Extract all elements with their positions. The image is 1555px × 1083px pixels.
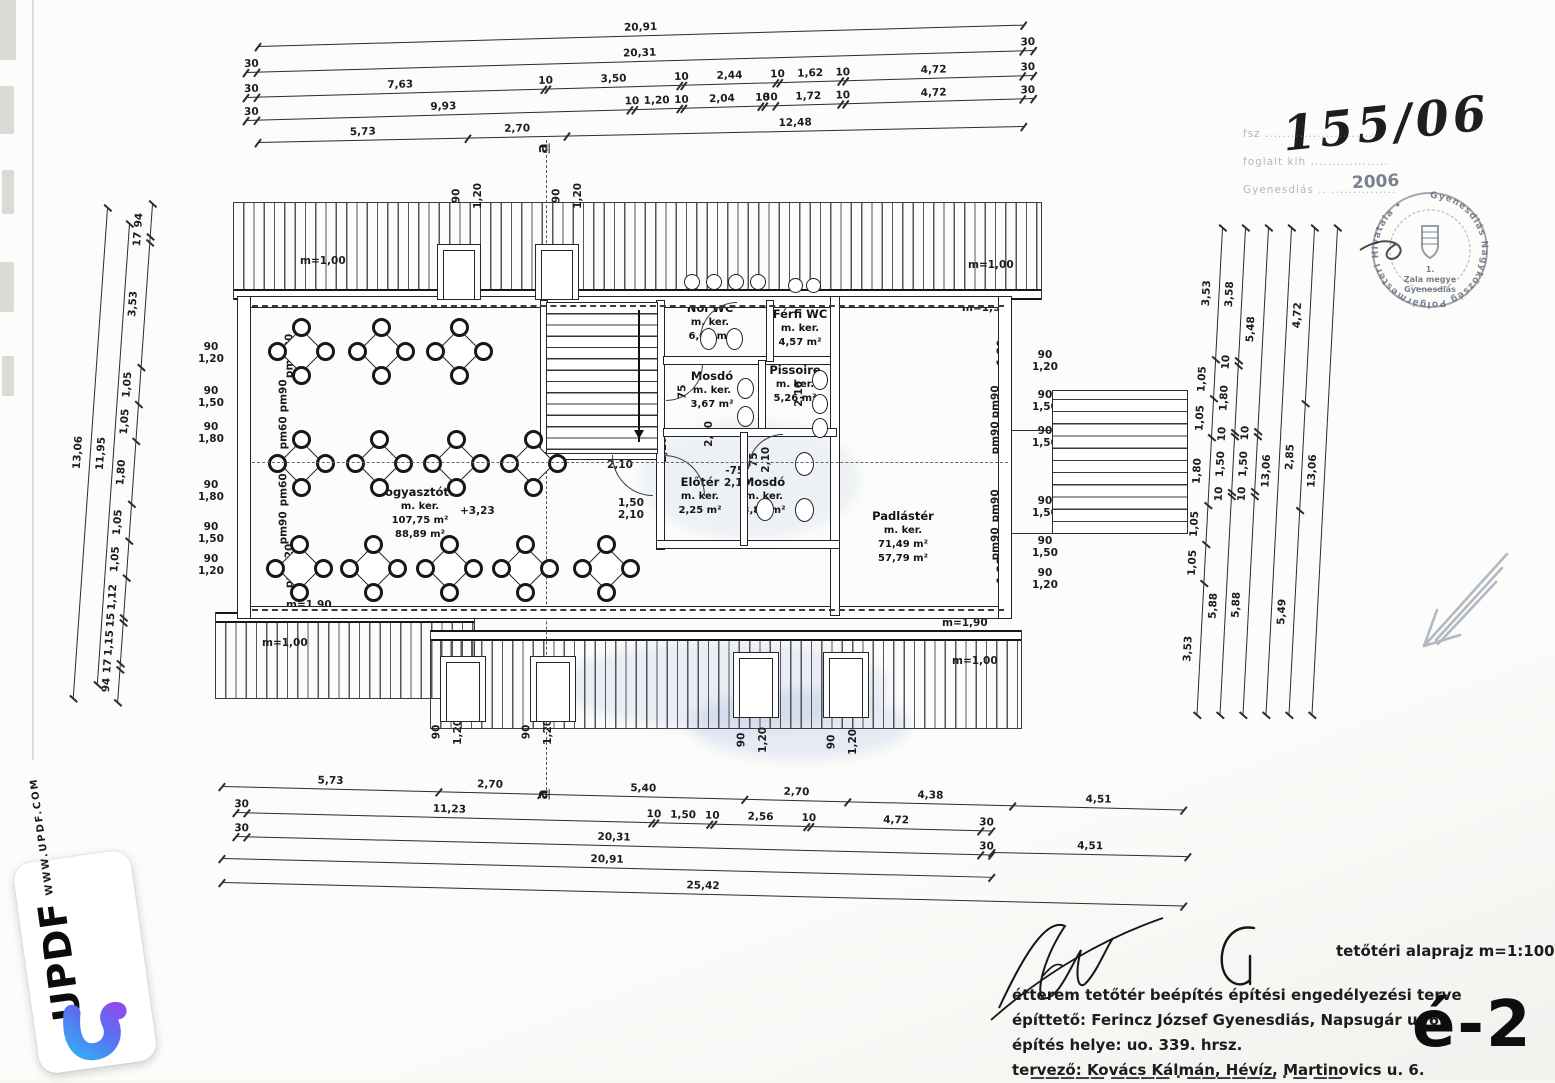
dim-value: 10 xyxy=(1220,355,1233,370)
dim-segment: 1,50 xyxy=(1232,437,1235,493)
chair xyxy=(370,478,389,497)
chair xyxy=(316,342,335,361)
dim-chain: 3011,23101,50102,56104,7230 xyxy=(236,812,992,831)
dim-value: 10 xyxy=(801,812,816,824)
project-line: étterem tetőtér beépítés építési engedél… xyxy=(1012,983,1462,1008)
dim-segment: 2,70 xyxy=(745,800,847,802)
chair xyxy=(447,478,466,497)
dim-value: 20,91 xyxy=(624,21,658,34)
stair-direction-arrow xyxy=(638,310,640,442)
dim-chain: 94173,531,051,051,801,051,051,12151,1517… xyxy=(117,204,153,703)
chair xyxy=(364,535,383,554)
dim-segment: 4,72 xyxy=(811,827,981,831)
dim-segment: 12,48 xyxy=(567,127,1024,137)
dim-value: 10 xyxy=(1216,426,1229,441)
dim-segment: 4,72 xyxy=(845,99,1022,104)
dim-value: 1,05 xyxy=(118,409,132,436)
fixture-urinal xyxy=(812,418,828,438)
annotation: +3,23 xyxy=(460,506,495,518)
dim-value: 9,93 xyxy=(430,100,456,113)
dim-value: 3,50 xyxy=(600,72,626,85)
dim-segment: 20,31 xyxy=(247,837,981,855)
dim-value: 4,72 xyxy=(920,86,946,99)
dim-value: 5,40 xyxy=(630,782,656,795)
annotation: 901,80 xyxy=(198,422,224,446)
dim-value: 13,06 xyxy=(1305,454,1319,488)
chair xyxy=(548,454,567,473)
dim-segment: 1,80 xyxy=(1208,438,1212,505)
dim-segment: 5,40 xyxy=(541,795,745,800)
dim-segment: 1,15 xyxy=(121,623,124,663)
annotation: 1,20 xyxy=(573,183,585,209)
dim-segment: 20,91 xyxy=(258,26,1024,47)
dim-segment: 20,31 xyxy=(257,51,1022,72)
dim-segment: 4,51 xyxy=(1013,806,1184,810)
annotation: 90 xyxy=(451,189,463,204)
dim-value: 2,44 xyxy=(716,69,742,82)
annotation: 1,20 xyxy=(848,729,860,755)
municipal-stamp: Gyenesdiás Nagyközség Polgármesteri Hiva… xyxy=(1368,188,1492,312)
annotation: m=1,90 xyxy=(942,618,988,630)
dim-segment: 5,73 xyxy=(222,787,439,792)
dim-segment: 20,91 xyxy=(222,859,992,878)
wall-eloter-v xyxy=(740,432,748,546)
handwritten-file-number: 155/06 xyxy=(1280,85,1493,162)
dim-value: 1,80 xyxy=(114,459,128,486)
annotation: a xyxy=(535,789,552,799)
fixture-toilet xyxy=(737,406,754,427)
chair xyxy=(474,342,493,361)
chair xyxy=(440,583,459,602)
dim-value: 1,05 xyxy=(108,546,122,573)
dim-segment: 4,51 xyxy=(992,853,1188,857)
chair xyxy=(440,535,459,554)
dim-segment: 5,88 xyxy=(1243,497,1254,716)
fixture-basin xyxy=(788,278,803,293)
chair xyxy=(340,559,359,578)
dim-value: 30 xyxy=(979,816,994,828)
fixture-basin xyxy=(706,274,722,290)
stamp-center-3: Gyenesdiás xyxy=(1404,285,1456,294)
dim-value: 4,72 xyxy=(1291,302,1304,329)
dim-segment: 1,05 xyxy=(127,542,130,579)
dim-segment: 4,72 xyxy=(1306,228,1315,404)
scan-fold-line xyxy=(32,0,34,760)
dim-segment: 1,05 xyxy=(1214,360,1216,399)
dim-segment: 4,72 xyxy=(845,76,1022,81)
chair xyxy=(266,559,285,578)
dim-value: 12,48 xyxy=(778,116,811,129)
dim-segment: 25,42 xyxy=(222,883,1184,907)
project-line: építés helye: uo. 339. hrsz. xyxy=(1012,1033,1462,1058)
dim-value: 10 xyxy=(1236,486,1249,501)
drawing-title: tetőtéri alaprajz m=1:100 xyxy=(1336,942,1555,960)
dim-value: 30 xyxy=(1020,36,1035,48)
annotation: 901,50 xyxy=(1032,536,1058,560)
faint-form-line: fsz .......................... xyxy=(1243,128,1378,140)
chair xyxy=(471,454,490,473)
chair xyxy=(364,583,383,602)
fixture-basin xyxy=(756,498,774,521)
dim-value: 30 xyxy=(244,106,259,118)
dim-value: 2,56 xyxy=(747,811,773,824)
roof-hatch-bottom xyxy=(430,630,1022,729)
dim-value: 13,06 xyxy=(1259,454,1273,488)
dim-value: 1,05 xyxy=(1186,550,1199,577)
chair xyxy=(573,559,592,578)
dim-value: 1,05 xyxy=(120,372,134,399)
annotation: 90 xyxy=(521,725,533,740)
dim-segment: 1,72 xyxy=(776,104,841,106)
dim-value: 1,05 xyxy=(1195,365,1208,392)
dim-value: 2,04 xyxy=(709,92,735,105)
dim-value: 94 xyxy=(132,212,145,227)
dim-value: 3,53 xyxy=(126,291,140,318)
chair xyxy=(372,318,391,337)
dim-chain: 3020,3130 xyxy=(236,836,992,855)
dim-segment: 94 xyxy=(118,670,120,703)
dim-value: 30 xyxy=(1020,61,1035,73)
scan-artifact xyxy=(0,262,14,312)
dim-value: 1,05 xyxy=(1193,405,1206,432)
dim-value: 25,42 xyxy=(686,879,720,892)
dim-value: 30 xyxy=(244,83,259,95)
dim-value: 17 xyxy=(101,658,114,673)
chair xyxy=(292,478,311,497)
dim-segment: 13,06 xyxy=(1312,228,1338,715)
dim-value: 4,51 xyxy=(1085,793,1111,806)
dim-segment: 5,73 xyxy=(258,139,468,143)
fixture-toilet xyxy=(737,378,754,399)
chair xyxy=(416,559,435,578)
dim-segment: 1,05 xyxy=(1212,399,1214,438)
dim-value: 20,31 xyxy=(597,831,631,844)
chair xyxy=(292,366,311,385)
annotation: 901,20 xyxy=(198,342,224,366)
dim-value: 1,12 xyxy=(106,584,120,611)
updf-text-group: UPDF WWW.UPDF.COM xyxy=(25,869,89,1024)
dim-value: 2,85 xyxy=(1283,443,1296,470)
dim-segment: 1,05 xyxy=(129,505,132,542)
dim-chain: 4,51 xyxy=(992,852,1188,857)
dim-value: 3,53 xyxy=(1181,636,1194,663)
scan-artifact xyxy=(0,0,16,60)
dim-value: 20,91 xyxy=(590,853,624,866)
chair xyxy=(290,535,309,554)
dim-value: 7,63 xyxy=(387,78,413,91)
chair xyxy=(464,559,483,578)
dim-segment: 1,62 xyxy=(780,81,841,83)
dim-segment: 13,06 xyxy=(1266,228,1292,715)
dim-value: 30 xyxy=(763,91,778,103)
annotation: m=1,00 xyxy=(952,656,998,668)
wall-wc-h2 xyxy=(663,428,837,437)
dormer-window xyxy=(535,244,579,300)
chair xyxy=(290,583,309,602)
annotation: 1,502,10 xyxy=(618,498,644,522)
updf-watermark: UPDF WWW.UPDF.COM xyxy=(12,849,158,1075)
dim-chain: 20,91 xyxy=(258,25,1024,47)
faint-form-line: foglalt kih .................. xyxy=(1243,156,1389,168)
room-label: Padlástérm. ker.71,49 m²57,79 m² xyxy=(872,508,934,566)
dim-value: 13,06 xyxy=(71,436,85,470)
annotation: pm60 xyxy=(279,416,291,449)
dim-chain: 13,06 xyxy=(1265,228,1292,715)
fixture-basin xyxy=(806,278,821,293)
kneewall-line-top xyxy=(252,305,1004,307)
dim-segment: 1,20 xyxy=(634,109,679,110)
project-line: építtető: Ferincz József Gyenesdiás, Nap… xyxy=(1012,1008,1462,1033)
dim-segment: 5,49 xyxy=(1289,511,1300,716)
dim-chain: 5,732,7012,48 xyxy=(258,126,1024,143)
dim-value: 5,88 xyxy=(1207,592,1220,619)
chair xyxy=(268,342,287,361)
dim-value: 4,38 xyxy=(917,789,943,802)
chair xyxy=(500,454,519,473)
wall-padlaster xyxy=(830,296,840,616)
annotation: 1,20 xyxy=(758,727,770,753)
dim-segment: 2,70 xyxy=(439,792,541,794)
dim-value: 30 xyxy=(234,798,249,810)
dim-value: 3,53 xyxy=(1200,280,1213,307)
annotation: 90 xyxy=(551,189,563,204)
chair xyxy=(370,430,389,449)
deck-connector xyxy=(1010,430,1054,534)
dim-value: 4,51 xyxy=(1077,840,1103,853)
dormer-window xyxy=(823,652,869,718)
dim-value: 17 xyxy=(131,232,144,247)
dim-value: 3,58 xyxy=(1223,281,1236,308)
dim-value: 2,70 xyxy=(504,122,530,135)
dim-value: 10 xyxy=(1213,486,1226,501)
dim-segment: 3,53 xyxy=(1216,228,1223,360)
dim-segment: 2,44 xyxy=(684,83,776,86)
kneewall-line-bottom xyxy=(252,609,1004,611)
dim-value: 11,95 xyxy=(94,437,108,471)
dim-chain: 5,732,705,402,704,384,51 xyxy=(222,786,1184,811)
dim-value: 5,49 xyxy=(1275,599,1288,626)
annotation: m=1,00 xyxy=(300,256,346,268)
annotation: pm90 xyxy=(279,379,291,412)
wall-wc-v2 xyxy=(758,360,766,437)
dim-value: 10 xyxy=(1239,426,1252,441)
dim-value: 4,72 xyxy=(920,63,946,76)
dim-value: 1,20 xyxy=(644,94,670,107)
annotation: 901,80 xyxy=(198,480,224,504)
annotation: 90 xyxy=(736,733,748,748)
roof-hatch-top xyxy=(233,202,1042,300)
dim-value: 1,50 xyxy=(1214,451,1227,478)
dim-segment: 2,85 xyxy=(1300,404,1306,510)
dim-value: 94 xyxy=(100,678,113,693)
dormer-window xyxy=(530,656,576,722)
annotation: pm60 xyxy=(279,473,291,506)
stamp-center-1: 1. xyxy=(1426,265,1435,274)
chair xyxy=(516,583,535,602)
scan-artifact xyxy=(2,356,14,396)
dim-chain: 3020,3130 xyxy=(246,50,1034,73)
dim-segment: 2,04 xyxy=(684,107,761,109)
dim-value: 1,05 xyxy=(111,509,125,536)
dim-segment: 3,53 xyxy=(142,243,151,367)
dim-segment: 94 xyxy=(151,204,153,237)
sketch-arrow xyxy=(1392,542,1522,677)
annotation: 901,50 xyxy=(198,522,224,546)
fixture-basin xyxy=(728,274,744,290)
chair xyxy=(450,366,469,385)
dim-segment: 1,50 xyxy=(1255,436,1258,492)
annotation: m=1,00 xyxy=(968,260,1014,272)
chair xyxy=(316,454,335,473)
dim-segment: 1,80 xyxy=(132,441,136,504)
annotation: pm90 xyxy=(279,511,291,544)
dim-value: 30 xyxy=(244,58,259,70)
dim-segment: 1,05 xyxy=(139,367,142,404)
fixture-basin xyxy=(684,274,700,290)
dim-chain: 13,06 xyxy=(1311,228,1338,715)
chair xyxy=(268,454,287,473)
chair xyxy=(396,342,415,361)
chair xyxy=(447,430,466,449)
chair xyxy=(516,535,535,554)
annotation: 1,20 xyxy=(473,183,485,209)
chair xyxy=(348,342,367,361)
wall-left xyxy=(237,296,251,619)
annotation: 901,20 xyxy=(1032,350,1058,374)
scan-artifact xyxy=(2,170,14,214)
wall-right xyxy=(998,296,1012,619)
dim-segment: 3,53 xyxy=(1197,584,1204,716)
exterior-stair-deck xyxy=(1052,390,1188,534)
chair xyxy=(597,583,616,602)
chair xyxy=(292,318,311,337)
truncated-line: ————— ———— · —————— · — —— xyxy=(1030,1068,1430,1079)
dim-value: 5,73 xyxy=(317,774,343,787)
dim-value: 10 xyxy=(646,808,661,820)
dim-segment: 5,48 xyxy=(1258,228,1269,432)
chair xyxy=(524,478,543,497)
fixture-toilet xyxy=(795,498,814,522)
chair xyxy=(423,454,442,473)
dim-segment: 1,05 xyxy=(136,404,139,441)
dim-value: 10 xyxy=(705,809,720,821)
scanned-floorplan-sheet: 155/06 fsz .......................... fo… xyxy=(0,0,1555,1080)
dim-segment: 2,70 xyxy=(468,137,567,139)
dim-value: 1,72 xyxy=(795,90,821,103)
dim-value: 30 xyxy=(234,822,249,834)
dim-segment: 9,93 xyxy=(257,110,630,120)
dim-value: 20,31 xyxy=(623,47,657,60)
dim-chain: 309,93101,20102,0410301,72104,7230 xyxy=(246,98,1034,121)
annotation: a xyxy=(535,143,552,153)
dim-value: 30 xyxy=(1020,84,1035,96)
dim-segment: 2,56 xyxy=(714,825,806,827)
dim-value: 1,15 xyxy=(102,629,116,656)
chair xyxy=(372,366,391,385)
dim-segment: 1,05 xyxy=(1206,505,1208,544)
chair xyxy=(524,430,543,449)
annotation: m=1,00 xyxy=(262,638,308,650)
annotation: 901,20 xyxy=(1032,568,1058,592)
room-label: Férfi WCm. ker.4,57 m² xyxy=(773,306,828,350)
annotation: 1,20 xyxy=(543,719,555,745)
dim-value: 2,70 xyxy=(477,778,503,791)
stamp-center-2: Zala megye xyxy=(1404,275,1457,284)
dim-value: 1,80 xyxy=(1191,458,1204,485)
fixture-toilet xyxy=(795,452,814,476)
dim-value: 1,05 xyxy=(1188,511,1201,538)
wall-wc-v1 xyxy=(766,300,774,362)
dim-value: 11,23 xyxy=(433,803,467,816)
dim-value: 2,70 xyxy=(783,786,809,799)
dim-value: 1,62 xyxy=(797,67,823,80)
dim-segment: 1,50 xyxy=(656,823,710,824)
dim-value: 4,72 xyxy=(883,814,909,827)
dim-segment: 11,23 xyxy=(247,813,652,823)
center-line xyxy=(252,462,1008,463)
annotation: 90 xyxy=(826,735,838,750)
chair xyxy=(292,430,311,449)
dim-segment: 4,38 xyxy=(847,802,1013,806)
annotation: 90 xyxy=(431,725,443,740)
fixture-urinal xyxy=(812,394,828,414)
wall-eloter-bottom xyxy=(656,540,840,549)
annotation: 901,20 xyxy=(198,554,224,578)
dim-value: 1,50 xyxy=(1237,450,1250,477)
dim-segment: 3,50 xyxy=(548,86,679,90)
fixture-basin xyxy=(750,274,766,290)
annotation: 1,20 xyxy=(453,719,465,745)
scan-artifact xyxy=(0,86,14,134)
dormer-window xyxy=(437,244,481,300)
chair xyxy=(492,559,511,578)
dim-chain: 25,42 xyxy=(222,882,1184,907)
chair xyxy=(314,559,333,578)
chair xyxy=(426,342,445,361)
dim-value: 5,48 xyxy=(1244,316,1257,343)
dim-chain: 307,63103,50102,44101,62104,7230 xyxy=(246,75,1034,98)
dim-segment: 1,12 xyxy=(124,579,127,618)
chair xyxy=(388,559,407,578)
dim-value: 15 xyxy=(104,612,117,627)
dim-value: 5,88 xyxy=(1230,592,1243,619)
chair xyxy=(597,535,616,554)
dormer-window xyxy=(440,656,486,722)
chair xyxy=(540,559,559,578)
wall-bottom xyxy=(237,606,1012,619)
dim-segment: 1,80 xyxy=(1235,365,1239,432)
chair xyxy=(394,454,413,473)
dim-segment: 1,05 xyxy=(1204,544,1206,583)
dim-value: 5,73 xyxy=(350,126,376,139)
fixture-urinal xyxy=(812,370,828,390)
drawing-code: é-2 xyxy=(1412,988,1533,1062)
updf-url: WWW.UPDF.COM xyxy=(28,777,55,896)
dim-segment: 7,63 xyxy=(257,90,543,98)
chair xyxy=(346,454,365,473)
dim-chain: 20,91 xyxy=(222,858,992,878)
dim-value: 1,80 xyxy=(1217,385,1230,412)
dim-value: 1,50 xyxy=(670,809,696,822)
annotation: 901,50 xyxy=(198,386,224,410)
updf-logo-icon xyxy=(58,997,132,1066)
chair xyxy=(450,318,469,337)
chair xyxy=(621,559,640,578)
dormer-window xyxy=(733,652,779,718)
